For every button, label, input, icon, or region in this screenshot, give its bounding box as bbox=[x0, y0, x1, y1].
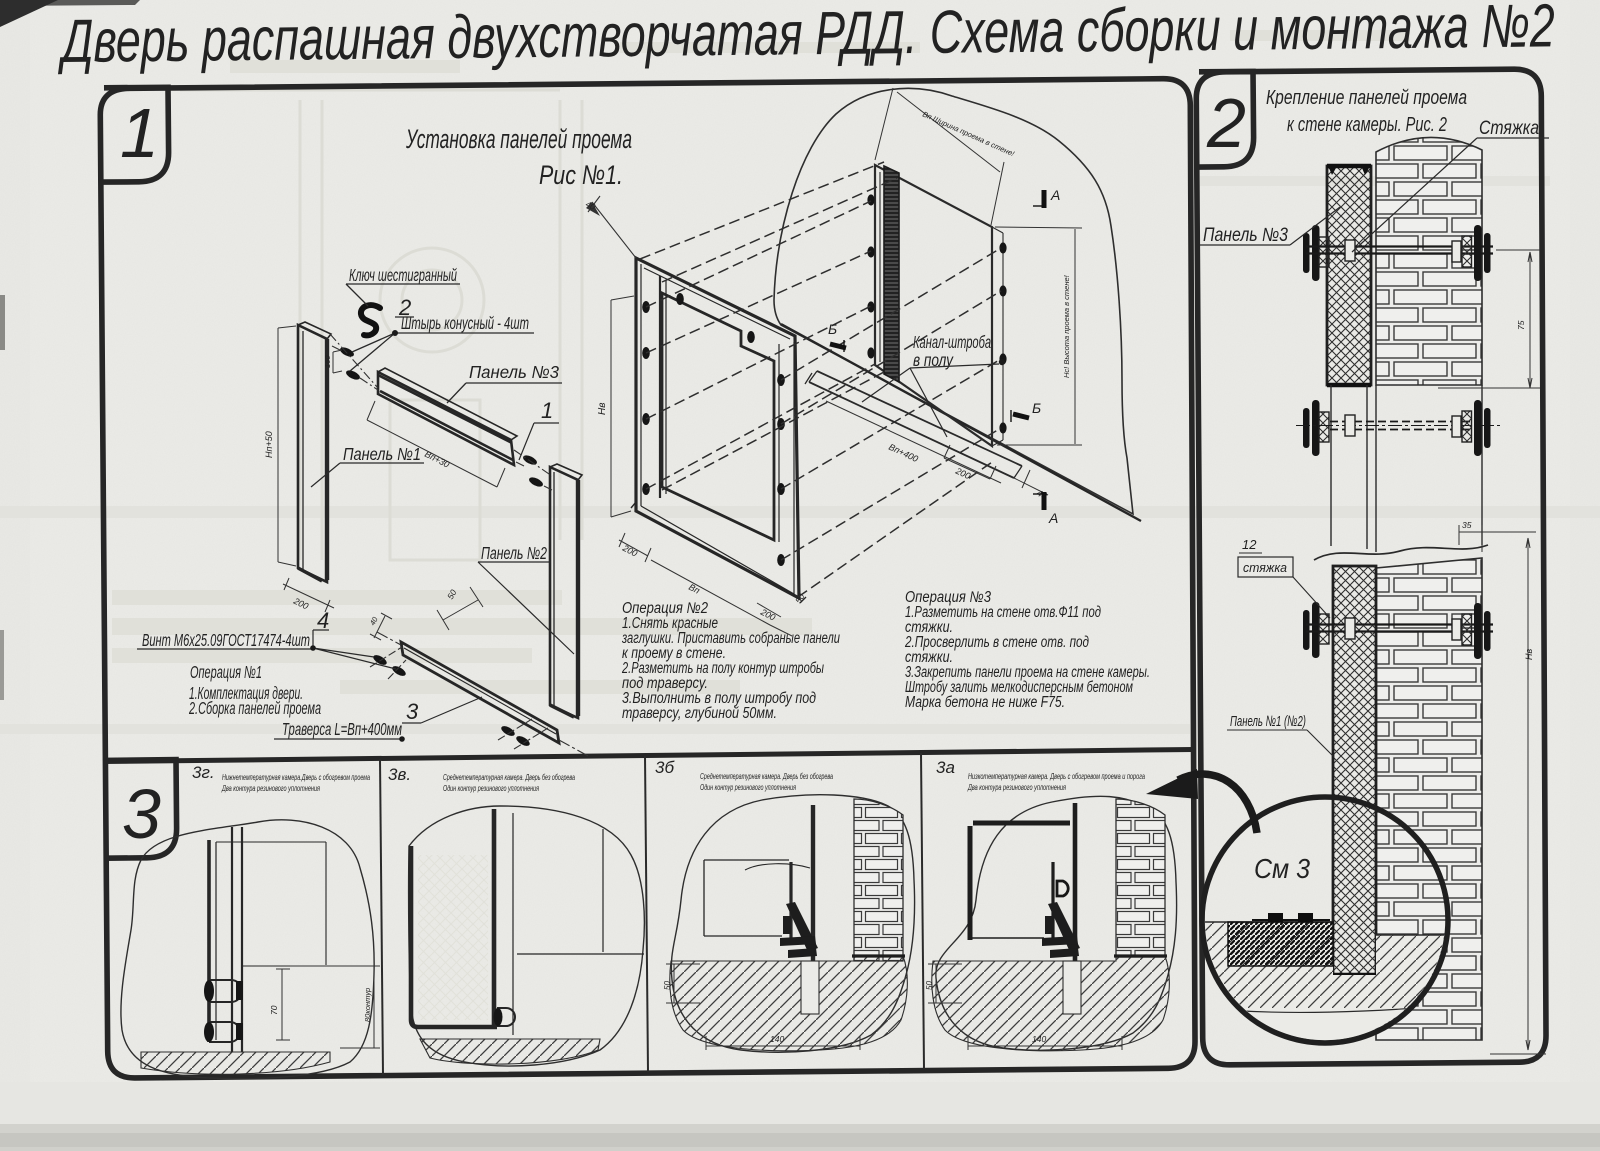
svg-text:3в.: 3в. bbox=[388, 765, 411, 784]
svg-text:Ключ шестигранный: Ключ шестигранный bbox=[349, 265, 457, 285]
svg-text:Рис №1.: Рис №1. bbox=[539, 160, 623, 190]
svg-text:Панель №2: Панель №2 bbox=[481, 543, 547, 563]
svg-text:140: 140 bbox=[770, 1034, 784, 1044]
svg-text:Нижнетемпературная камера.Двер: Нижнетемпературная камера.Дверь с обогре… bbox=[222, 772, 370, 782]
svg-text:Б: Б bbox=[828, 321, 837, 337]
svg-text:Марка бетона не ниже F75.: Марка бетона не ниже F75. bbox=[905, 694, 1065, 711]
svg-text:Б: Б bbox=[1032, 400, 1041, 416]
svg-text:Нп+50: Нп+50 bbox=[264, 431, 274, 458]
svg-text:Панель №3: Панель №3 bbox=[1203, 225, 1288, 246]
svg-text:Панель №3: Панель №3 bbox=[469, 362, 559, 382]
svg-text:Среднетемпературная камера. Дв: Среднетемпературная камера. Дверь без об… bbox=[700, 771, 833, 781]
svg-text:Нв: Нв bbox=[597, 403, 608, 415]
svg-text:140: 140 bbox=[1032, 1034, 1046, 1044]
svg-text:2: 2 bbox=[1206, 84, 1246, 162]
svg-text:Среднетемпературная камера. Дв: Среднетемпературная камера. Дверь без об… bbox=[443, 772, 575, 782]
svg-text:1: 1 bbox=[541, 398, 553, 423]
svg-text:Операция №1: Операция №1 bbox=[190, 662, 262, 682]
svg-text:А: А bbox=[1050, 187, 1060, 203]
svg-text:3: 3 bbox=[406, 699, 419, 724]
svg-text:Два контура резинового уплотне: Два контура резинового уплотнения bbox=[967, 782, 1066, 792]
svg-text:Нс! Высота проема в стене!: Нс! Высота проема в стене! bbox=[1062, 274, 1071, 378]
svg-text:70: 70 bbox=[269, 1005, 279, 1015]
svg-text:3б: 3б bbox=[655, 758, 675, 777]
svg-text:Один контур резинового уплотне: Один контур резинового уплотнения bbox=[700, 782, 796, 792]
svg-text:А: А bbox=[1048, 510, 1058, 526]
svg-text:4: 4 bbox=[317, 608, 329, 633]
svg-text:2.Сборка панелей проема: 2.Сборка панелей проема bbox=[188, 698, 321, 718]
svg-text:Панель №1: Панель №1 bbox=[343, 444, 421, 464]
svg-text:75: 75 bbox=[1516, 320, 1526, 330]
svg-text:Стяжка: Стяжка bbox=[1479, 118, 1539, 139]
svg-text:3: 3 bbox=[122, 775, 161, 853]
svg-text:80контур: 80контур bbox=[363, 988, 372, 1022]
svg-text:Траверса L=Вп+400мм: Траверса L=Вп+400мм bbox=[282, 719, 402, 739]
svg-text:1: 1 bbox=[120, 94, 159, 172]
svg-text:50: 50 bbox=[925, 981, 934, 990]
svg-text:Один контур резинового уплотне: Один контур резинового уплотнения bbox=[443, 783, 539, 793]
svg-text:Винт М6х25.09ГОСТ17474-4шт: Винт М6х25.09ГОСТ17474-4шт bbox=[142, 630, 310, 650]
svg-text:Панель №1 (№2): Панель №1 (№2) bbox=[1230, 713, 1306, 730]
svg-text:160: 160 bbox=[323, 355, 332, 368]
svg-text:50: 50 bbox=[663, 981, 672, 990]
svg-text:Два контура резинового уплотне: Два контура резинового уплотнения bbox=[221, 783, 320, 793]
svg-text:12: 12 bbox=[1242, 537, 1257, 552]
svg-text:См 3: См 3 bbox=[1254, 853, 1310, 884]
svg-text:к стене камеры. Рис. 2: к стене камеры. Рис. 2 bbox=[1287, 114, 1447, 136]
svg-text:Крепление панелей проема: Крепление панелей проема bbox=[1266, 87, 1467, 109]
svg-text:Установка панелей проема: Установка панелей проема bbox=[405, 124, 632, 154]
svg-text:Штырь конусный - 4шт: Штырь конусный - 4шт bbox=[401, 313, 529, 333]
svg-text:3а: 3а bbox=[936, 758, 955, 777]
svg-text:Канал-штроба: Канал-штроба bbox=[913, 332, 991, 352]
svg-text:3г.: 3г. bbox=[192, 763, 215, 782]
svg-text:35: 35 bbox=[1462, 520, 1472, 530]
svg-text:Нв: Нв bbox=[1524, 649, 1534, 660]
svg-text:траверсу, глубиной 50мм.: траверсу, глубиной 50мм. bbox=[622, 705, 777, 722]
svg-text:Низкотемпературная камера. Две: Низкотемпературная камера. Дверь с обогр… bbox=[968, 771, 1145, 781]
svg-text:стяжка: стяжка bbox=[1243, 560, 1287, 575]
